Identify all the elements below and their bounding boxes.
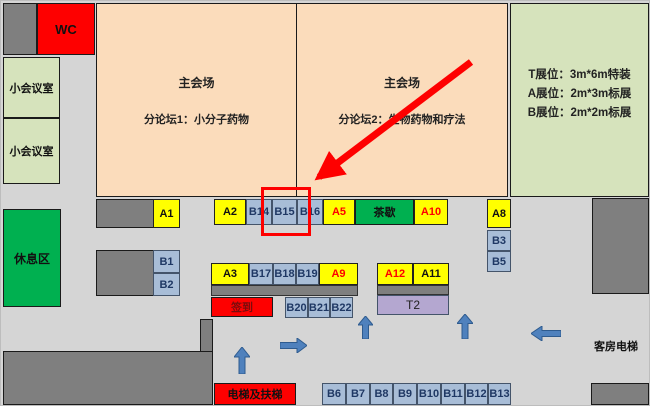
booth-b1: B1 (153, 250, 180, 273)
rest-area: 休息区 (3, 209, 61, 307)
booth-b13-label: B13 (489, 388, 509, 400)
booth-b6: B6 (322, 383, 346, 405)
hall-1-subtitle: 分论坛1：小分子药物 (144, 111, 249, 127)
direction-arrow-up-icon (358, 316, 373, 339)
booth-b7-label: B7 (351, 388, 365, 400)
elevator-escalator-label: 电梯及扶梯 (228, 386, 283, 402)
direction-arrow-up-icon (234, 347, 250, 374)
booth-b9: B9 (393, 383, 417, 405)
booth-b10: B10 (417, 383, 441, 405)
booth-a10: A10 (414, 199, 448, 225)
booth-a12: A12 (377, 263, 413, 285)
booth-b20: B20 (285, 297, 308, 318)
rest-area-label: 休息区 (14, 250, 50, 267)
booth-b12-label: B12 (466, 388, 486, 400)
tea-break-label: 茶歇 (374, 204, 396, 220)
wall-bottom-notch (200, 319, 213, 352)
wc-room: WC (37, 3, 95, 55)
booth-b18: B18 (273, 263, 296, 285)
booth-b9-label: B9 (398, 388, 412, 400)
meeting-room-upper: 小会议室 (3, 57, 60, 118)
direction-arrow-right-icon (280, 338, 307, 353)
booth-a8: A8 (487, 199, 511, 228)
booth-b8: B8 (370, 383, 393, 405)
meeting-room-lower-label: 小会议室 (10, 143, 54, 159)
wall-b1-b2-block (96, 250, 154, 296)
booth-b2: B2 (153, 273, 180, 296)
wall-strip-right (377, 285, 449, 295)
booth-b21: B21 (308, 297, 330, 318)
booth-b19-label: B19 (297, 268, 317, 280)
booth-b2-label: B2 (159, 279, 173, 291)
booth-t2: T2 (377, 295, 449, 315)
hall-1-title: 主会场 (178, 74, 214, 91)
booth-b17-label: B17 (251, 268, 271, 280)
booth-a9: A9 (319, 263, 358, 285)
direction-arrow-left-icon (531, 326, 561, 341)
wall-bottom-right (591, 383, 649, 405)
booth-b10-label: B10 (419, 388, 439, 400)
booth-a1-label: A1 (159, 208, 173, 220)
booth-b7: B7 (346, 383, 370, 405)
hall-2-title: 主会场 (384, 74, 420, 91)
booth-b5-label: B5 (492, 256, 506, 268)
sign-in-desk: 签到 (211, 297, 273, 317)
sign-in-label: 签到 (231, 299, 253, 315)
booth-b6-label: B6 (327, 388, 341, 400)
booth-a8-label: A8 (492, 208, 506, 220)
tea-break-area: 茶歇 (355, 199, 414, 225)
booth-a9-label: A9 (331, 268, 345, 280)
wall-bottom-left (3, 351, 213, 405)
booth-a3: A3 (211, 263, 249, 285)
booth-b3: B3 (487, 230, 511, 251)
booth-t2-label: T2 (406, 298, 420, 312)
hall-forum-2: 主会场 分论坛2：生物药物和疗法 (296, 3, 508, 197)
hall-2-subtitle: 分论坛2：生物药物和疗法 (338, 111, 465, 127)
wall-a1-block (96, 199, 154, 228)
booth-b8-label: B8 (374, 388, 388, 400)
booth-b17: B17 (249, 263, 273, 285)
meeting-room-upper-label: 小会议室 (10, 80, 54, 96)
wall-strip-left (211, 285, 358, 296)
booth-a5: A5 (323, 199, 355, 225)
hall-forum-1: 主会场 分论坛1：小分子药物 (96, 3, 297, 197)
booth-b5: B5 (487, 251, 511, 272)
direction-arrow-up-icon (457, 314, 473, 339)
booth-b21-label: B21 (309, 302, 329, 314)
booth-size-legend: T展位：3m*6m特装 A展位：2m*3m标展 B展位：2m*2m标展 (510, 3, 649, 197)
exhibition-floor-plan: WC 小会议室 小会议室 主会场 分论坛1：小分子药物 主会场 分论坛2：生物药… (0, 0, 650, 406)
booth-b19: B19 (296, 263, 319, 285)
booth-b22: B22 (330, 297, 353, 318)
booth-b11: B11 (441, 383, 465, 405)
booth-b22-label: B22 (331, 302, 351, 314)
legend-b-line: B展位：2m*2m标展 (528, 104, 632, 123)
booth-a11-label: A11 (421, 268, 441, 280)
booth-a3-label: A3 (223, 268, 237, 280)
booth-b13: B13 (488, 383, 511, 405)
wall-right-mid (592, 198, 649, 294)
booth-a10-label: A10 (421, 206, 441, 218)
booth-a11: A11 (413, 263, 449, 285)
booth-b18-label: B18 (274, 268, 294, 280)
booth-a12-label: A12 (385, 268, 405, 280)
booth-a2-label: A2 (223, 206, 237, 218)
booth-b15-highlight-box (261, 187, 311, 236)
legend-a-line: A展位：2m*3m标展 (528, 85, 632, 104)
legend-t-line: T展位：3m*6m特装 (528, 66, 630, 85)
wall-top-left (3, 3, 37, 55)
booth-b1-label: B1 (159, 256, 173, 268)
booth-a1: A1 (153, 199, 180, 228)
elevator-escalator: 电梯及扶梯 (214, 383, 296, 405)
meeting-room-lower: 小会议室 (3, 118, 60, 184)
booth-b3-label: B3 (492, 235, 506, 247)
booth-b12: B12 (465, 383, 488, 405)
booth-a5-label: A5 (332, 206, 346, 218)
wc-label: WC (55, 22, 77, 37)
booth-b11-label: B11 (443, 388, 463, 400)
booth-b20-label: B20 (286, 302, 306, 314)
booth-a2: A2 (214, 199, 246, 225)
guest-room-elevator-label: 客房电梯 (594, 338, 638, 354)
